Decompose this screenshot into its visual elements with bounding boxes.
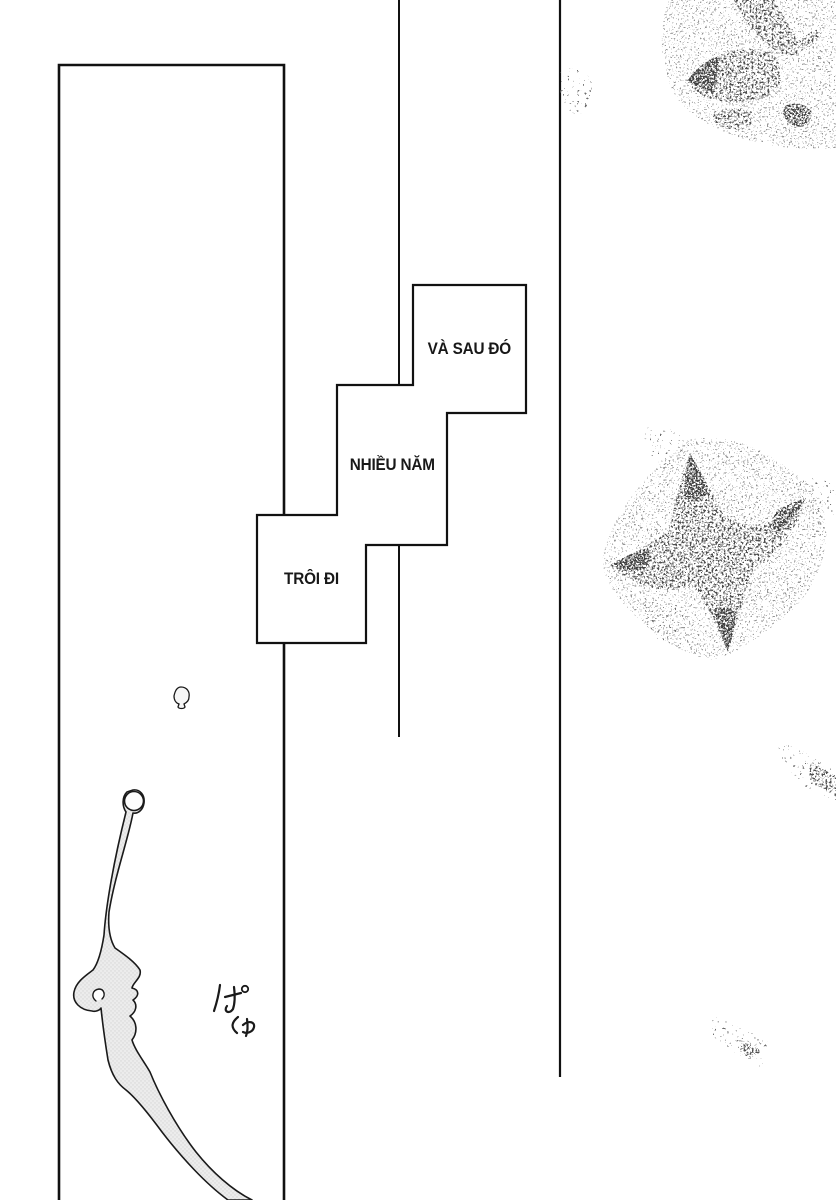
- artwork-svg: [0, 0, 836, 1200]
- butterfly-spill: [560, 68, 592, 115]
- butterfly-top-right: [560, 0, 836, 149]
- splash-head-blob: [125, 792, 144, 811]
- caption-text: NHIỀU NĂM: [349, 455, 434, 475]
- splash-knob-notch: [93, 989, 104, 1001]
- left-panel-border: [59, 65, 284, 1200]
- caption-box-bottom: TRÔI ĐI: [257, 515, 366, 643]
- caption-text: VÀ SAU ĐÓ: [428, 339, 511, 359]
- stipple-trail-bottom-right: [709, 1015, 769, 1068]
- butterfly-middle-right: [602, 427, 836, 660]
- caption-text: TRÔI ĐI: [284, 569, 339, 589]
- trail-sparse: [709, 1015, 769, 1068]
- stipple-trail-right-edge: [778, 742, 836, 800]
- manga-page: VÀ SAU ĐÓ NHIỀU NĂM TRÔI ĐI: [0, 0, 836, 1200]
